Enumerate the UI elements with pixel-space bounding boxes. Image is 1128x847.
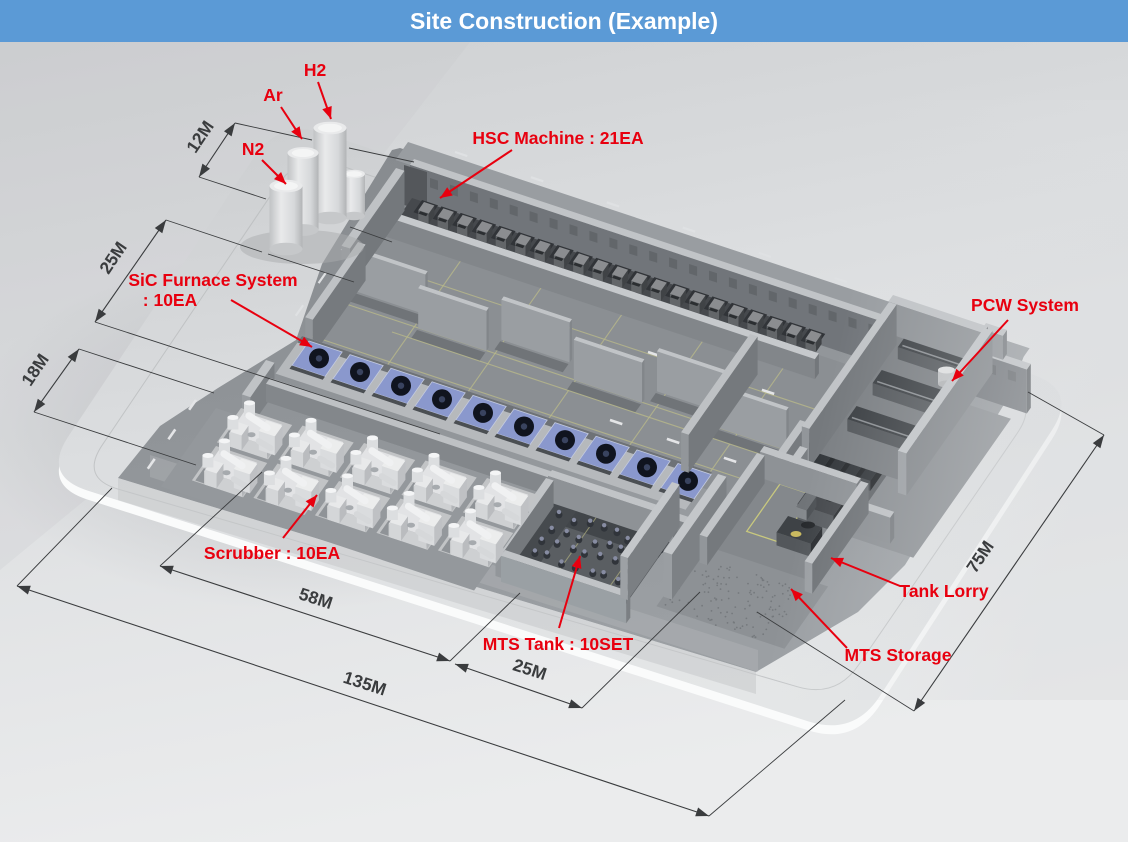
svg-text:: 10EA: : 10EA xyxy=(143,290,198,310)
svg-text:Ar: Ar xyxy=(263,85,283,105)
svg-text:H2: H2 xyxy=(304,60,327,80)
svg-text:Tank Lorry: Tank Lorry xyxy=(899,581,988,601)
svg-text:Scrubber : 10EA: Scrubber : 10EA xyxy=(204,543,341,563)
svg-text:MTS Storage: MTS Storage xyxy=(845,645,952,665)
svg-text:Site Construction (Example): Site Construction (Example) xyxy=(410,8,718,34)
svg-text:PCW System: PCW System xyxy=(971,295,1079,315)
svg-text:N2: N2 xyxy=(242,139,265,159)
svg-text:HSC Machine : 21EA: HSC Machine : 21EA xyxy=(472,128,644,148)
svg-text:SiC Furnace System: SiC Furnace System xyxy=(128,270,297,290)
svg-text:MTS Tank : 10SET: MTS Tank : 10SET xyxy=(483,634,634,654)
